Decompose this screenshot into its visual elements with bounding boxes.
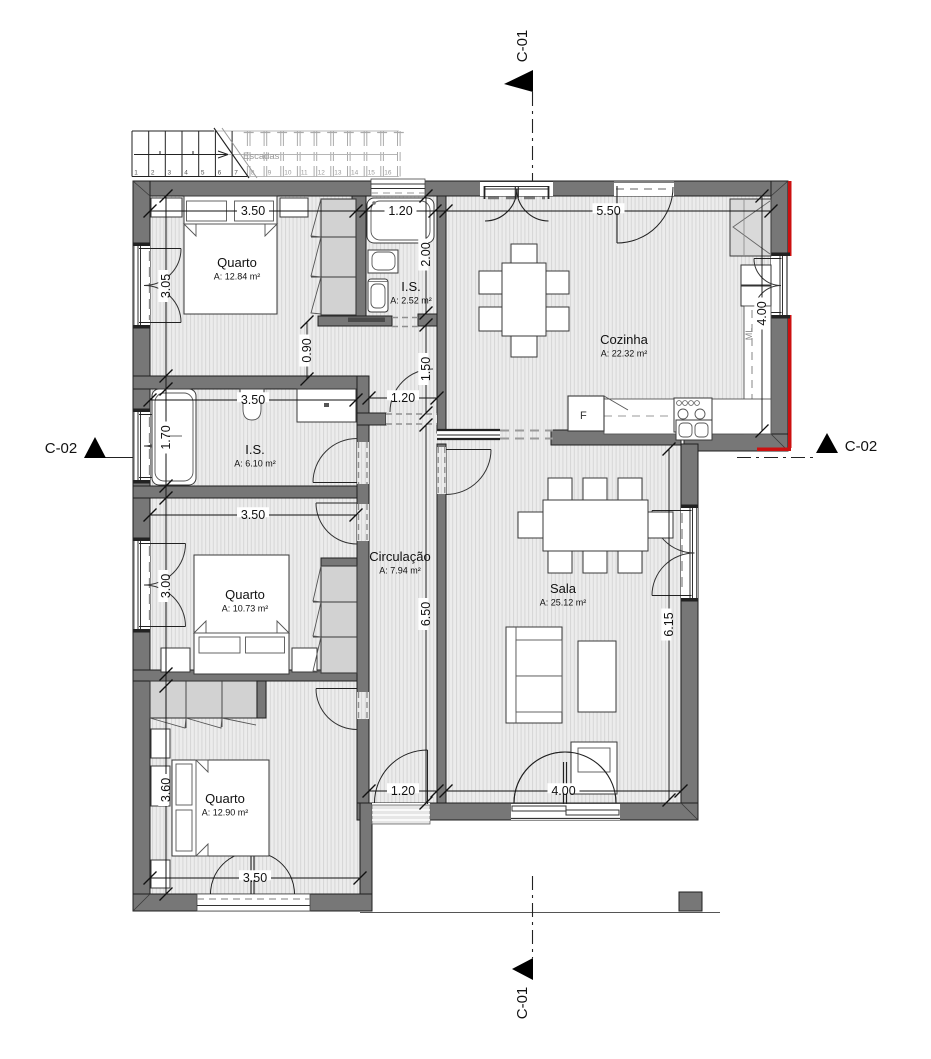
svg-text:A: 25.12 m²: A: 25.12 m² <box>540 598 587 608</box>
svg-text:3.50: 3.50 <box>243 871 267 885</box>
svg-text:C-01: C-01 <box>514 987 531 1020</box>
svg-text:F: F <box>580 410 587 422</box>
svg-text:Sala: Sala <box>550 581 577 596</box>
svg-text:15: 15 <box>368 170 376 177</box>
svg-text:12: 12 <box>318 170 326 177</box>
svg-text:A: 6.10 m²: A: 6.10 m² <box>234 459 276 469</box>
svg-text:Escadas: Escadas <box>243 151 280 162</box>
svg-text:Circulação: Circulação <box>369 549 430 564</box>
svg-text:2.00: 2.00 <box>419 242 433 266</box>
svg-text:7: 7 <box>234 170 238 177</box>
svg-text:1.70: 1.70 <box>159 425 173 449</box>
svg-text:A: 22.32 m²: A: 22.32 m² <box>601 349 648 359</box>
svg-text:A: 12.90 m²: A: 12.90 m² <box>202 808 249 818</box>
svg-text:14: 14 <box>351 170 359 177</box>
svg-text:6.50: 6.50 <box>419 602 433 626</box>
svg-text:13: 13 <box>334 170 342 177</box>
svg-text:Quarto: Quarto <box>225 587 265 602</box>
svg-text:A: 12.84 m²: A: 12.84 m² <box>214 272 261 282</box>
svg-text:C-02: C-02 <box>845 438 878 455</box>
svg-text:4: 4 <box>184 170 188 177</box>
svg-text:6: 6 <box>218 170 222 177</box>
svg-text:Cozinha: Cozinha <box>600 332 648 347</box>
svg-text:5: 5 <box>201 170 205 177</box>
svg-text:3.60: 3.60 <box>159 778 173 802</box>
svg-text:11: 11 <box>301 170 308 177</box>
svg-text:3.50: 3.50 <box>241 508 265 522</box>
svg-text:Quarto: Quarto <box>205 791 245 806</box>
svg-text:Quarto: Quarto <box>217 255 257 270</box>
svg-text:6.15: 6.15 <box>662 612 676 636</box>
svg-text:3: 3 <box>168 170 172 177</box>
svg-text:3.50: 3.50 <box>241 204 265 218</box>
svg-text:1.20: 1.20 <box>391 391 415 405</box>
svg-text:5.50: 5.50 <box>596 204 620 218</box>
svg-text:C-02: C-02 <box>45 440 78 457</box>
svg-text:9: 9 <box>268 170 272 177</box>
svg-text:ML: ML <box>744 328 754 341</box>
svg-text:16: 16 <box>384 170 392 177</box>
svg-text:1: 1 <box>134 170 138 177</box>
svg-text:C-01: C-01 <box>514 30 531 63</box>
svg-text:3.50: 3.50 <box>241 393 265 407</box>
svg-text:1.20: 1.20 <box>388 204 412 218</box>
svg-text:I.S.: I.S. <box>245 442 265 457</box>
svg-text:4.00: 4.00 <box>551 784 575 798</box>
svg-text:I.S.: I.S. <box>401 279 421 294</box>
svg-text:4.00: 4.00 <box>755 301 769 325</box>
svg-text:3.05: 3.05 <box>159 274 173 298</box>
svg-text:3.00: 3.00 <box>159 574 173 598</box>
svg-text:10: 10 <box>284 170 292 177</box>
svg-text:A: 2.52 m²: A: 2.52 m² <box>390 296 432 306</box>
svg-text:A: 7.94 m²: A: 7.94 m² <box>379 566 421 576</box>
svg-text:2: 2 <box>151 170 155 177</box>
svg-text:1.50: 1.50 <box>419 357 433 381</box>
svg-text:1.20: 1.20 <box>391 784 415 798</box>
svg-text:0.90: 0.90 <box>300 338 314 362</box>
svg-text:A: 10.73 m²: A: 10.73 m² <box>222 604 269 614</box>
